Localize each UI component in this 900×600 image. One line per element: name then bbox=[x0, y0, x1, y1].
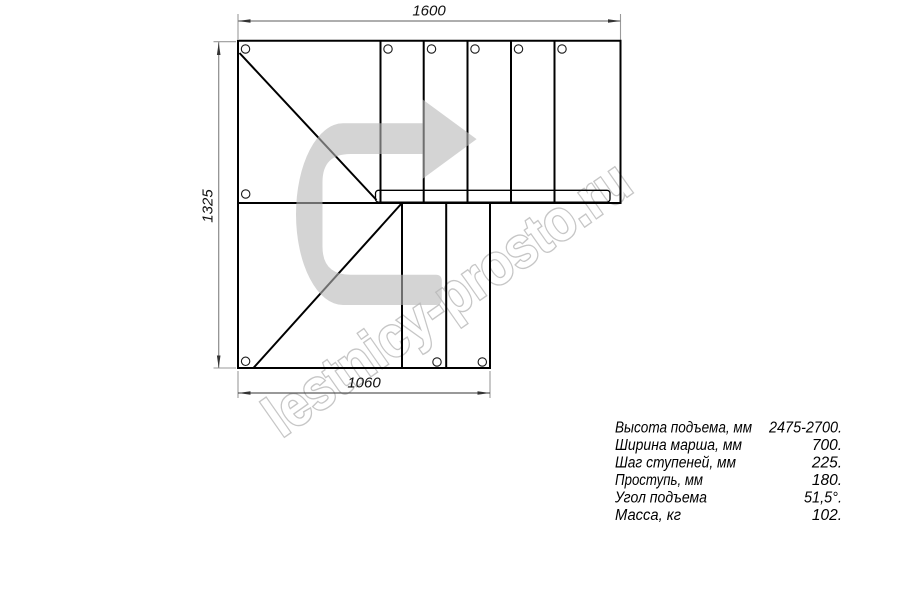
svg-text:Высота подъема, мм: Высота подъема, мм bbox=[615, 420, 752, 437]
svg-text:102.: 102. bbox=[812, 507, 842, 524]
svg-text:225.: 225. bbox=[811, 455, 842, 472]
svg-text:700.: 700. bbox=[812, 437, 842, 454]
svg-text:Проступь, мм: Проступь, мм bbox=[615, 472, 703, 489]
svg-text:51,5°.: 51,5°. bbox=[804, 490, 842, 507]
svg-text:Шаг ступеней, мм: Шаг ступеней, мм bbox=[615, 455, 736, 472]
svg-text:180.: 180. bbox=[812, 472, 842, 489]
svg-text:1600: 1600 bbox=[412, 3, 446, 20]
svg-text:Масса, кг: Масса, кг bbox=[615, 507, 681, 524]
svg-text:1060: 1060 bbox=[347, 375, 381, 392]
svg-text:Ширина марша, мм: Ширина марша, мм bbox=[615, 437, 742, 454]
svg-text:Угол подъема: Угол подъема bbox=[614, 490, 707, 507]
svg-text:2475-2700.: 2475-2700. bbox=[768, 420, 842, 437]
svg-text:1325: 1325 bbox=[200, 189, 217, 223]
